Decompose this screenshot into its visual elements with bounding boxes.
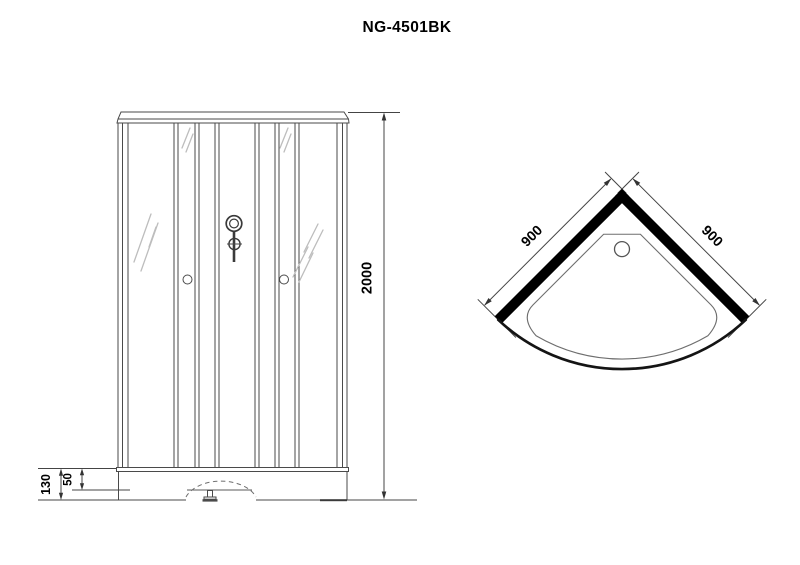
drain-circle: [611, 238, 632, 259]
tray-shadow: [320, 499, 347, 501]
panel-frame-lines: [118, 123, 347, 468]
left-stile-hatch: [182, 128, 193, 152]
dashed-access-arc: [186, 481, 256, 497]
left-door-knob: [183, 275, 192, 284]
drawing-canvas: NG-4501BK: [0, 0, 800, 565]
right-width-dim-label: 900: [699, 222, 727, 250]
right-door-knob: [280, 275, 289, 284]
right-glass-hatch: [293, 224, 323, 282]
dim-2000: 2000: [347, 113, 417, 501]
page-title: NG-4501BK: [363, 19, 452, 36]
front-elevation-view: 2000 130 50: [38, 112, 417, 502]
canopy: [117, 112, 349, 123]
base-height-dim-label: 130: [39, 474, 53, 495]
dim-130: 130: [38, 469, 119, 501]
right-stile-hatch: [280, 128, 291, 152]
technical-drawing: NG-4501BK: [0, 0, 800, 565]
height-dim-label: 2000: [360, 262, 376, 294]
shower-mixer: [226, 216, 242, 262]
base-tray: [117, 468, 349, 502]
left-width-dim-label: 900: [518, 222, 546, 250]
drain-foot: [203, 491, 218, 502]
base-inner-dim-label: 50: [63, 473, 75, 486]
left-glass-hatch: [134, 214, 158, 271]
top-plan-view: 900 900: [467, 134, 777, 444]
